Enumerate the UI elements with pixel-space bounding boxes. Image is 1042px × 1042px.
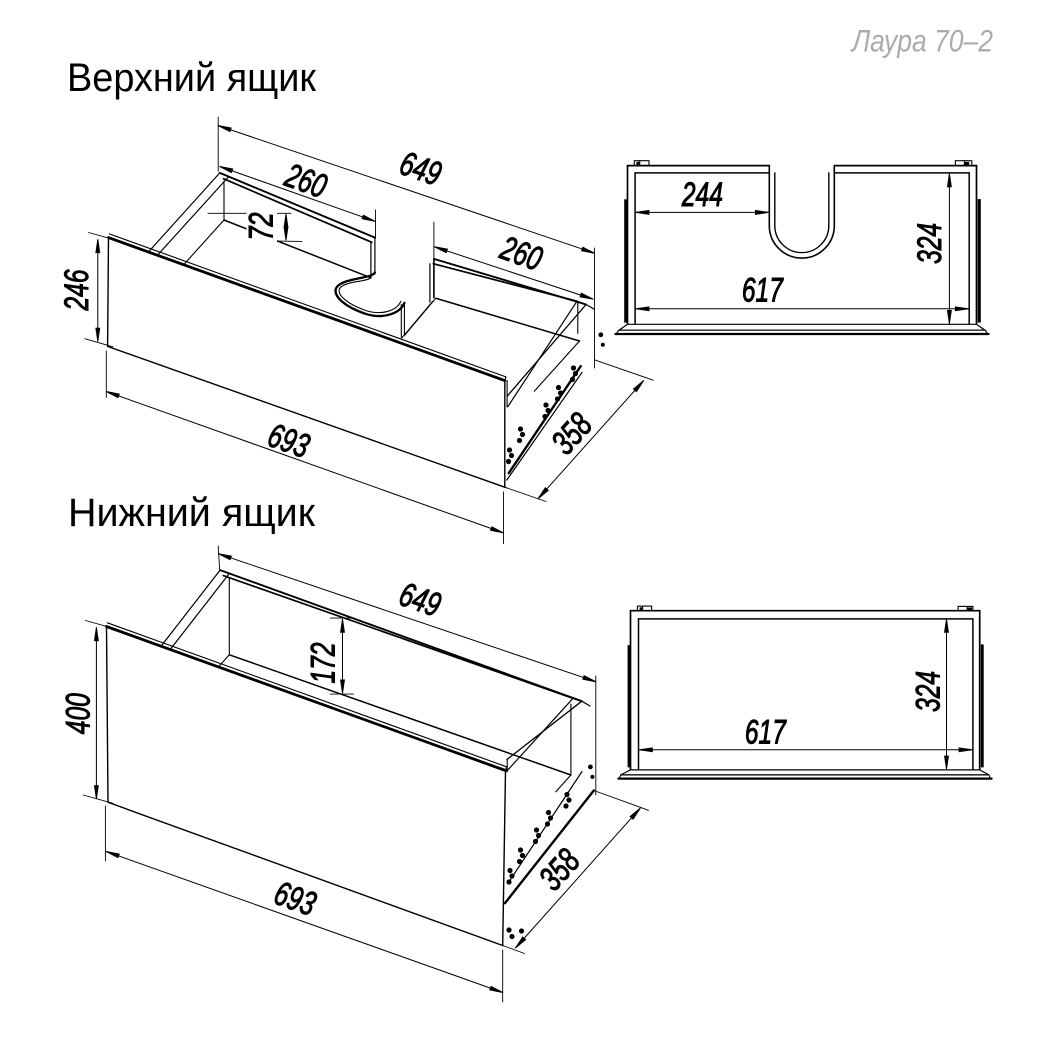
svg-text:324: 324 — [910, 671, 948, 712]
svg-text:Верхний ящик: Верхний ящик — [67, 56, 317, 100]
svg-text:324: 324 — [911, 223, 949, 264]
svg-text:246: 246 — [58, 269, 96, 311]
svg-text:72: 72 — [243, 212, 281, 240]
svg-text:617: 617 — [745, 714, 787, 752]
svg-text:172: 172 — [305, 642, 343, 683]
svg-text:Нижний ящик: Нижний ящик — [68, 491, 316, 535]
svg-text:244: 244 — [681, 176, 723, 214]
svg-text:617: 617 — [742, 272, 784, 310]
svg-text:400: 400 — [60, 693, 98, 734]
svg-text:Лаура 70–2: Лаура 70–2 — [850, 23, 993, 59]
